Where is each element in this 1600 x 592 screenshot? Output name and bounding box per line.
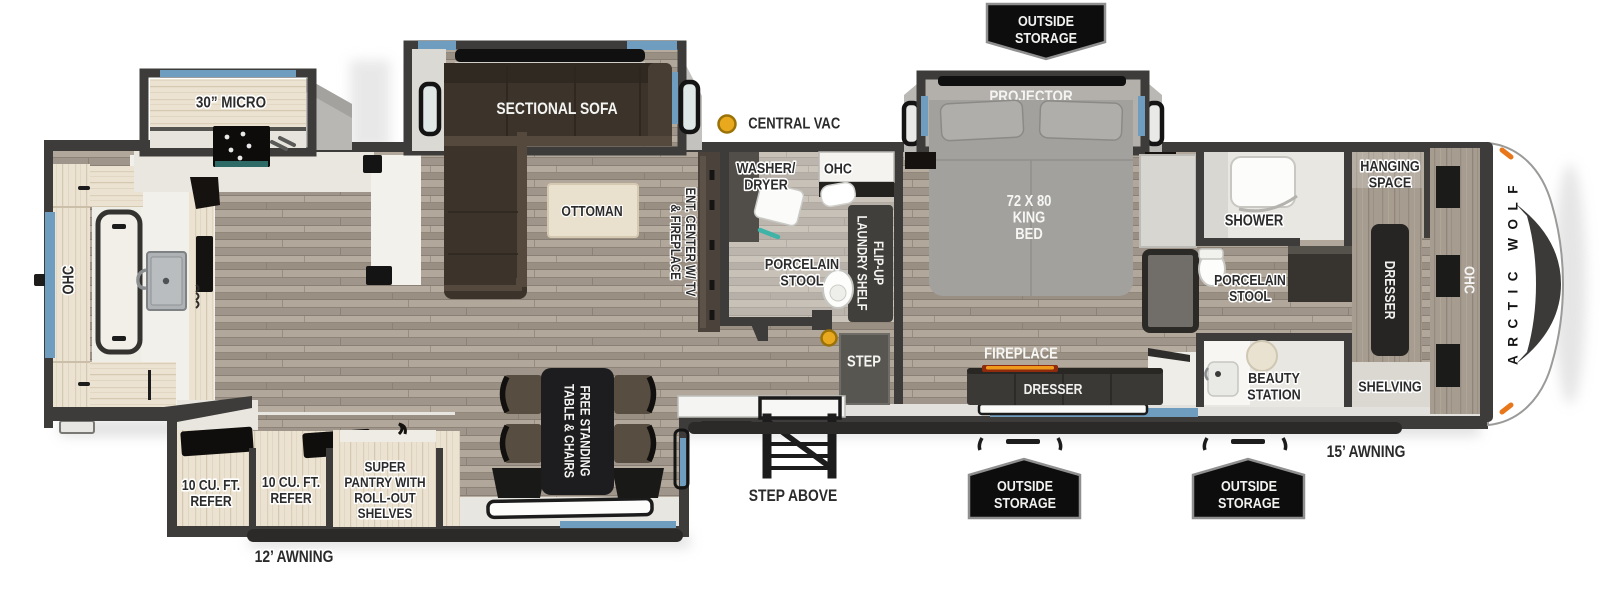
svg-text:TABLE & CHAIRS: TABLE & CHAIRS xyxy=(561,384,576,478)
svg-text:REFER: REFER xyxy=(270,490,312,506)
svg-text:LAUNDRY SHELF: LAUNDRY SHELF xyxy=(854,215,869,310)
svg-text:FREE STANDING: FREE STANDING xyxy=(577,386,592,477)
svg-text:10 CU. FT.: 10 CU. FT. xyxy=(182,477,240,493)
svg-text:72 X 80: 72 X 80 xyxy=(1007,193,1052,210)
svg-text:ROLL-OUT: ROLL-OUT xyxy=(354,490,416,506)
svg-text:SHOWER: SHOWER xyxy=(1225,212,1284,229)
svg-text:PANTRY WITH: PANTRY WITH xyxy=(344,474,425,490)
svg-text:BEAUTY: BEAUTY xyxy=(1248,369,1300,386)
svg-text:10 CU. FT.: 10 CU. FT. xyxy=(262,474,320,490)
svg-text:STORAGE: STORAGE xyxy=(1218,494,1280,511)
svg-text:ENT. CENTER W/ TV: ENT. CENTER W/ TV xyxy=(683,188,698,298)
svg-text:PORCELAIN: PORCELAIN xyxy=(765,255,839,272)
svg-text:OUTSIDE: OUTSIDE xyxy=(1018,12,1074,29)
svg-text:STEP ABOVE: STEP ABOVE xyxy=(749,487,837,505)
svg-text:12’ AWNING: 12’ AWNING xyxy=(255,548,334,566)
svg-text:WASHER/: WASHER/ xyxy=(737,159,796,176)
svg-text:STORAGE: STORAGE xyxy=(994,494,1056,511)
svg-text:STOOL: STOOL xyxy=(780,272,824,289)
svg-text:30” MICRO: 30” MICRO xyxy=(196,94,266,111)
svg-text:OHC: OHC xyxy=(60,266,77,295)
svg-text:DRESSER: DRESSER xyxy=(1382,261,1398,320)
svg-text:KING: KING xyxy=(1013,209,1046,226)
svg-text:OUTSIDE: OUTSIDE xyxy=(997,477,1053,494)
svg-text:OHC: OHC xyxy=(824,159,852,176)
svg-text:STEP: STEP xyxy=(847,353,881,370)
svg-text:SHELVES: SHELVES xyxy=(358,505,413,521)
svg-text:CENTRAL VAC: CENTRAL VAC xyxy=(748,115,840,132)
svg-text:15’ AWNING: 15’ AWNING xyxy=(1327,443,1406,461)
svg-text:OUTSIDE: OUTSIDE xyxy=(1221,477,1277,494)
svg-text:OHC: OHC xyxy=(1461,266,1478,294)
svg-text:DRYER: DRYER xyxy=(744,176,788,193)
svg-text:STOOL: STOOL xyxy=(1229,288,1271,304)
svg-text:BED: BED xyxy=(1015,226,1042,243)
svg-text:ARCTIC WOLF: ARCTIC WOLF xyxy=(1506,177,1521,365)
svg-text:SUPER: SUPER xyxy=(364,459,406,475)
svg-text:SHELVING: SHELVING xyxy=(1358,377,1421,394)
svg-text:PORCELAIN: PORCELAIN xyxy=(1214,272,1286,288)
svg-text:HANGING: HANGING xyxy=(1360,157,1419,174)
svg-text:& FIREPLACE: & FIREPLACE xyxy=(668,204,683,280)
svg-text:SECTIONAL SOFA: SECTIONAL SOFA xyxy=(496,100,617,118)
svg-text:DRESSER: DRESSER xyxy=(1024,381,1083,397)
svg-text:REFER: REFER xyxy=(190,493,232,509)
svg-text:OTTOMAN: OTTOMAN xyxy=(561,203,622,219)
svg-text:FIREPLACE: FIREPLACE xyxy=(984,345,1058,362)
svg-text:FLIP-UP: FLIP-UP xyxy=(871,241,886,285)
svg-text:STATION: STATION xyxy=(1247,386,1300,403)
svg-text:STORAGE: STORAGE xyxy=(1015,29,1077,46)
